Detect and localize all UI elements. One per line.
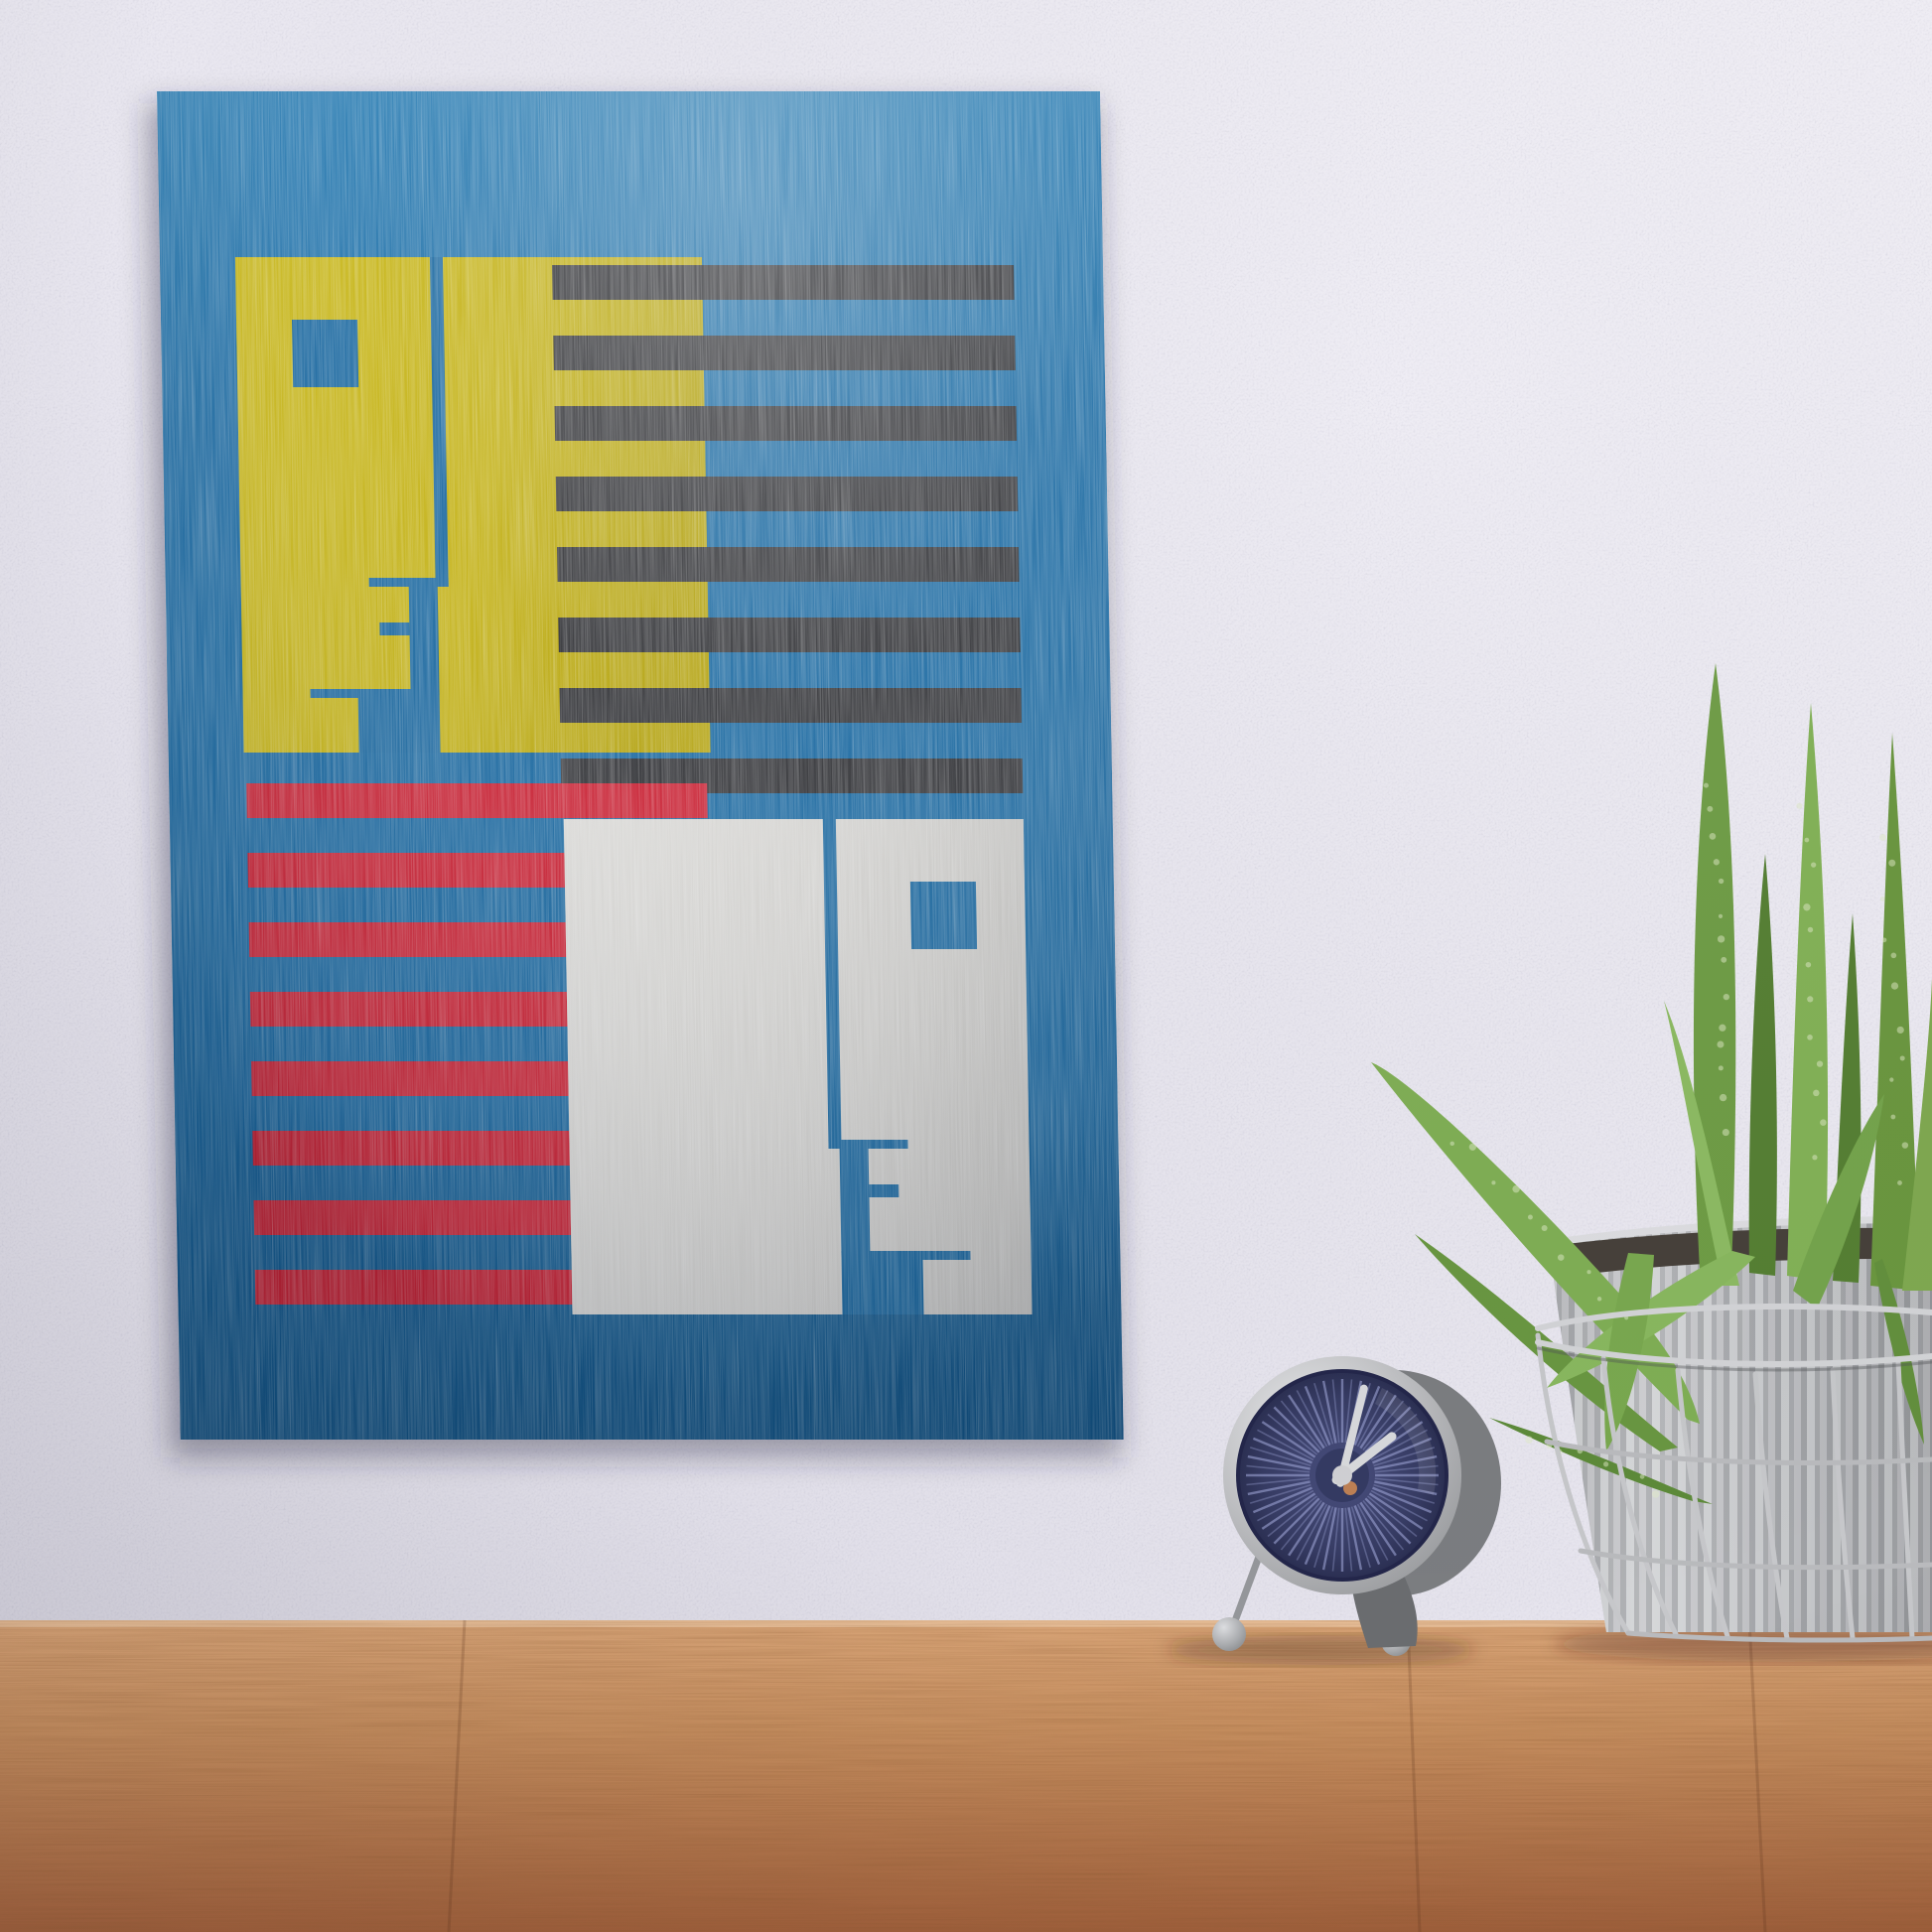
leaf-speckle [1812, 1155, 1817, 1160]
leaf-speckle [1900, 1055, 1905, 1060]
leaf-speckle [1820, 1119, 1827, 1126]
leaf-speckle [1891, 982, 1898, 989]
leaf-speckle [1888, 860, 1895, 867]
leaf-speckle [1719, 914, 1723, 918]
leaf-speckle [1512, 1185, 1519, 1192]
clock-foot-ball [1212, 1617, 1246, 1651]
leaf-speckle [1587, 1270, 1590, 1274]
leaf-speckle [1902, 1142, 1908, 1148]
leaf-speckle [1719, 1025, 1725, 1032]
leaf-speckle [1528, 1214, 1533, 1219]
leaf-speckle [1724, 994, 1729, 1000]
leaf-speckle [1542, 1225, 1548, 1231]
leaf-speckle [1704, 783, 1709, 788]
leaf-speckle [1891, 953, 1897, 959]
leaf-speckle [1525, 1436, 1533, 1444]
leaf-speckle [1720, 1094, 1726, 1101]
leaf-speckle [1450, 1142, 1454, 1146]
leaf-speckle [1897, 1027, 1904, 1034]
table [0, 1620, 1932, 1932]
leaf-speckle [1889, 1077, 1893, 1081]
panel-sheen [157, 91, 1124, 1440]
leaf-speckle [1890, 1115, 1895, 1120]
leaf-speckle [1491, 1180, 1495, 1184]
leaf-speckle [1897, 1180, 1902, 1185]
leaf-speckle [1803, 903, 1810, 910]
leaf-speckle [1805, 838, 1810, 843]
leaf-speckle [1714, 859, 1720, 865]
leaf-speckle [1811, 862, 1816, 867]
leaf-speckle [1718, 935, 1725, 942]
leaf-speckle [1723, 1129, 1729, 1136]
clock-shadow [1167, 1635, 1474, 1665]
leaf-speckle [1719, 1065, 1724, 1070]
leaf-speckle [1807, 996, 1813, 1002]
leaf-speckle [1597, 1297, 1601, 1301]
leaf-speckle [1652, 1490, 1660, 1498]
art-panel [157, 91, 1124, 1440]
leaf-speckle [1806, 962, 1812, 968]
room-scene [0, 0, 1932, 1932]
leaf-speckle [1796, 803, 1802, 809]
leaf-speckle [1721, 957, 1726, 963]
leaf-speckle [1808, 927, 1813, 932]
leaf-speckle [1710, 833, 1717, 840]
leaf-speckle [1817, 1060, 1823, 1066]
leaf-speckle [1880, 897, 1885, 901]
leaf-speckle [1813, 1090, 1819, 1096]
leaf-speckle [1882, 937, 1887, 942]
clock-hub [1332, 1465, 1352, 1485]
leaf-speckle [1717, 1041, 1724, 1048]
leaf-speckle [1807, 1035, 1813, 1040]
leaf-speckle [1640, 1474, 1645, 1479]
wood-grain [0, 1620, 1932, 1932]
leaf-speckle [1558, 1254, 1565, 1261]
leaf-speckle [1603, 1461, 1608, 1466]
leaf-speckle [1707, 806, 1713, 812]
leaf-speckle [1469, 1144, 1476, 1151]
leaf-speckle [1879, 834, 1886, 841]
leaf-speckle [1719, 879, 1724, 884]
